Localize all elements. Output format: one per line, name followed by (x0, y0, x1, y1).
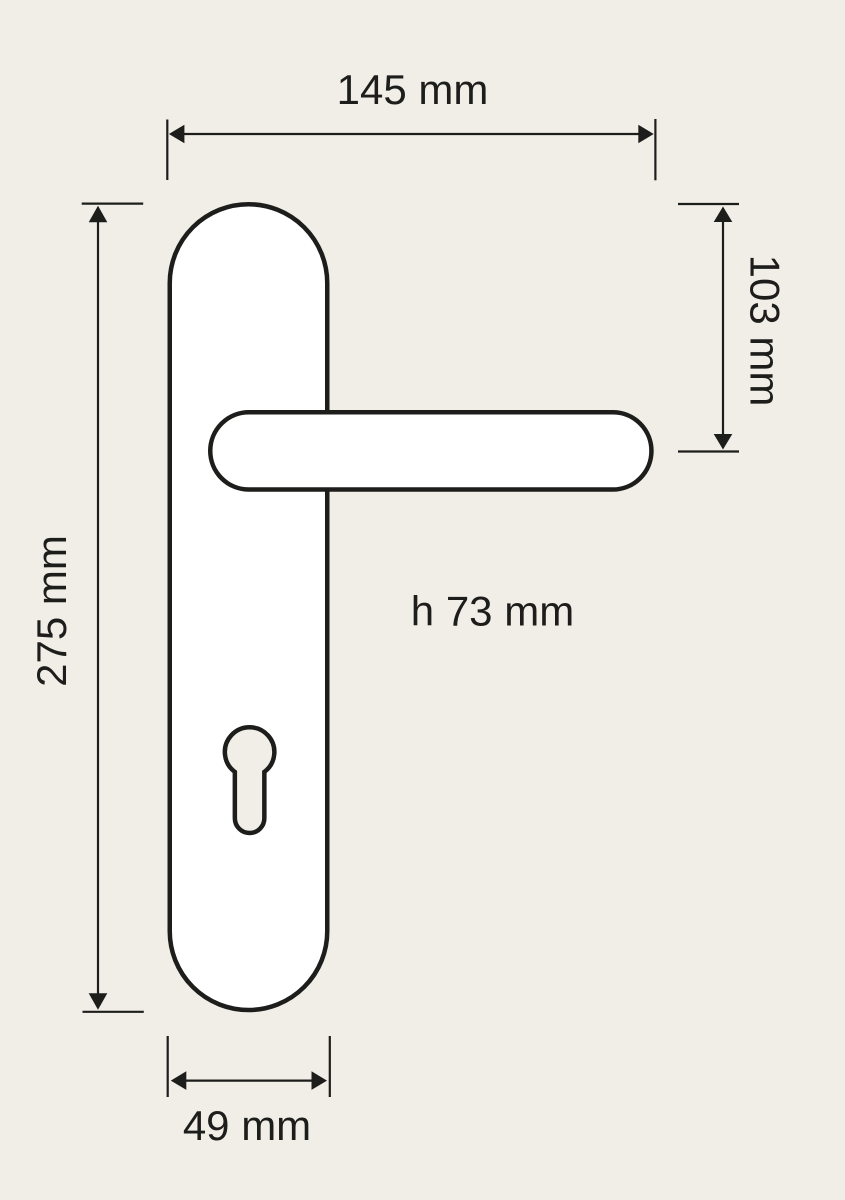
svg-text:145 mm: 145 mm (337, 66, 489, 113)
svg-text:103 mm: 103 mm (742, 255, 789, 407)
svg-text:h 73 mm: h 73 mm (411, 588, 574, 635)
svg-text:49 mm: 49 mm (183, 1102, 311, 1149)
svg-text:275 mm: 275 mm (28, 535, 75, 687)
